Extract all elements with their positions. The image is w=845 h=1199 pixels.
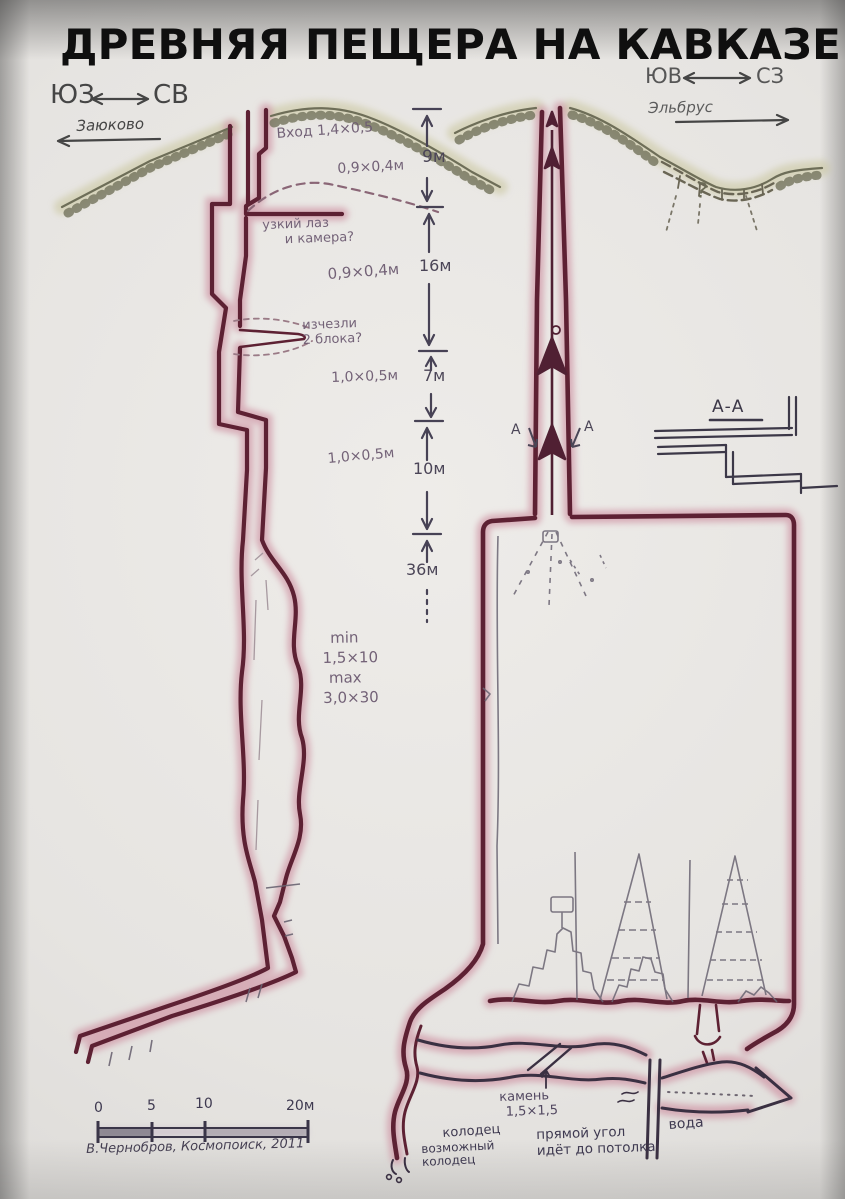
scale-tick-5: 5: [147, 1098, 156, 1114]
chamber-sketch: [483, 531, 777, 1002]
aa-detail-drawing: [655, 397, 837, 493]
depth-9m: 9м: [422, 147, 446, 167]
scale-tick-10: 10: [195, 1096, 213, 1112]
terrain: [62, 108, 822, 234]
stone-label: камень 1,5×1,5: [499, 1088, 558, 1120]
compass-right-nw: СЗ: [756, 64, 784, 88]
compass-left-sw: ЮЗ: [50, 80, 95, 110]
dim-lower-label: 1,0×0,5м: [331, 368, 398, 386]
aa-detail-title: А-А: [712, 397, 744, 417]
depth-36m: 36м: [406, 560, 438, 579]
compass-left-place: Заюково: [76, 115, 144, 135]
compass-left-ne: СВ: [153, 80, 189, 110]
page-title: ДРЕВНЯЯ ПЕЩЕРА НА КАВКАЗЕ: [60, 20, 841, 69]
depth-10m: 10м: [413, 459, 445, 478]
cut-mark-right: А: [584, 419, 594, 435]
water-label: вода: [668, 1115, 704, 1133]
passage-size-note: min 1,5×10 max 3,0×30: [322, 627, 379, 708]
cave-survey-poster: ДРЕВНЯЯ ПЕЩЕРА НА КАВКАЗЕ ЮЗ СВ Заюково …: [0, 0, 845, 1199]
depth-16m: 16м: [419, 256, 451, 275]
possible-well-label: возможный колодец: [421, 1139, 495, 1169]
depth-7m: 7м: [423, 366, 445, 385]
blocks-note: изчезли 2 блока?: [302, 316, 362, 348]
compass-right-se: ЮВ: [645, 64, 682, 88]
cave-diagram-art: [0, 0, 845, 1199]
cut-mark-left: А: [511, 422, 521, 438]
narrow-passage-note: узкий лаз и камера?: [262, 215, 354, 248]
scale-tick-20m: 20м: [286, 1098, 314, 1114]
right-cave-section: [393, 108, 794, 1158]
scale-tick-0: 0: [94, 1100, 103, 1116]
right-angle-note: прямой угол идёт до потолка: [536, 1123, 656, 1159]
compass-right-place: Эльбрус: [648, 98, 713, 117]
